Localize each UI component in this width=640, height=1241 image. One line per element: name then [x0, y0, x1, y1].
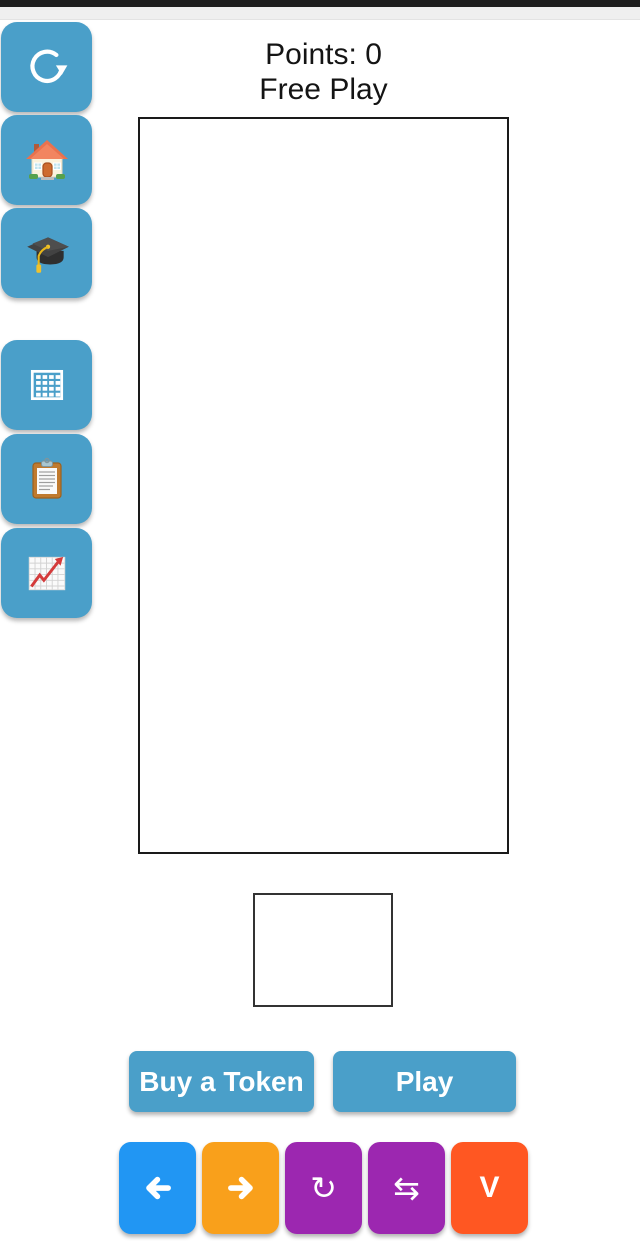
header: Points: 0 Free Play	[138, 37, 509, 107]
graduation-cap-icon	[22, 228, 72, 278]
swap-icon: ⇆	[393, 1172, 420, 1204]
chart-up-icon	[22, 548, 72, 598]
sidebar-item-scores[interactable]	[1, 434, 92, 524]
move-left-button[interactable]	[119, 1142, 196, 1234]
game-board	[138, 117, 509, 854]
arrow-left-icon	[140, 1170, 176, 1206]
points-display: Points: 0	[138, 37, 509, 72]
move-right-button[interactable]	[202, 1142, 279, 1234]
top-bar	[0, 7, 640, 20]
grid-icon	[26, 364, 68, 406]
sidebar-item-home[interactable]	[1, 115, 92, 205]
points-label: Points:	[265, 38, 357, 71]
status-bar	[0, 0, 640, 7]
refresh-icon	[24, 44, 70, 90]
drop-button[interactable]: V	[451, 1142, 528, 1234]
play-button[interactable]: Play	[333, 1051, 516, 1112]
sidebar-item-learn[interactable]	[1, 208, 92, 298]
buy-token-label: Buy a Token	[139, 1066, 303, 1098]
drop-icon: V	[479, 1173, 499, 1203]
rotate-button[interactable]: ↻	[285, 1142, 362, 1234]
piece-preview-box	[253, 893, 393, 1007]
clipboard-icon	[23, 455, 71, 503]
points-value: 0	[365, 38, 382, 71]
arrow-right-icon	[223, 1170, 259, 1206]
mode-label: Free Play	[138, 72, 509, 107]
buy-token-button[interactable]: Buy a Token	[129, 1051, 314, 1112]
swap-button[interactable]: ⇆	[368, 1142, 445, 1234]
rotate-icon: ↻	[310, 1172, 337, 1204]
sidebar-item-grid[interactable]	[1, 340, 92, 430]
sidebar-item-refresh[interactable]	[1, 22, 92, 112]
sidebar-item-stats[interactable]	[1, 528, 92, 618]
play-label: Play	[396, 1066, 454, 1098]
house-icon	[23, 136, 71, 184]
